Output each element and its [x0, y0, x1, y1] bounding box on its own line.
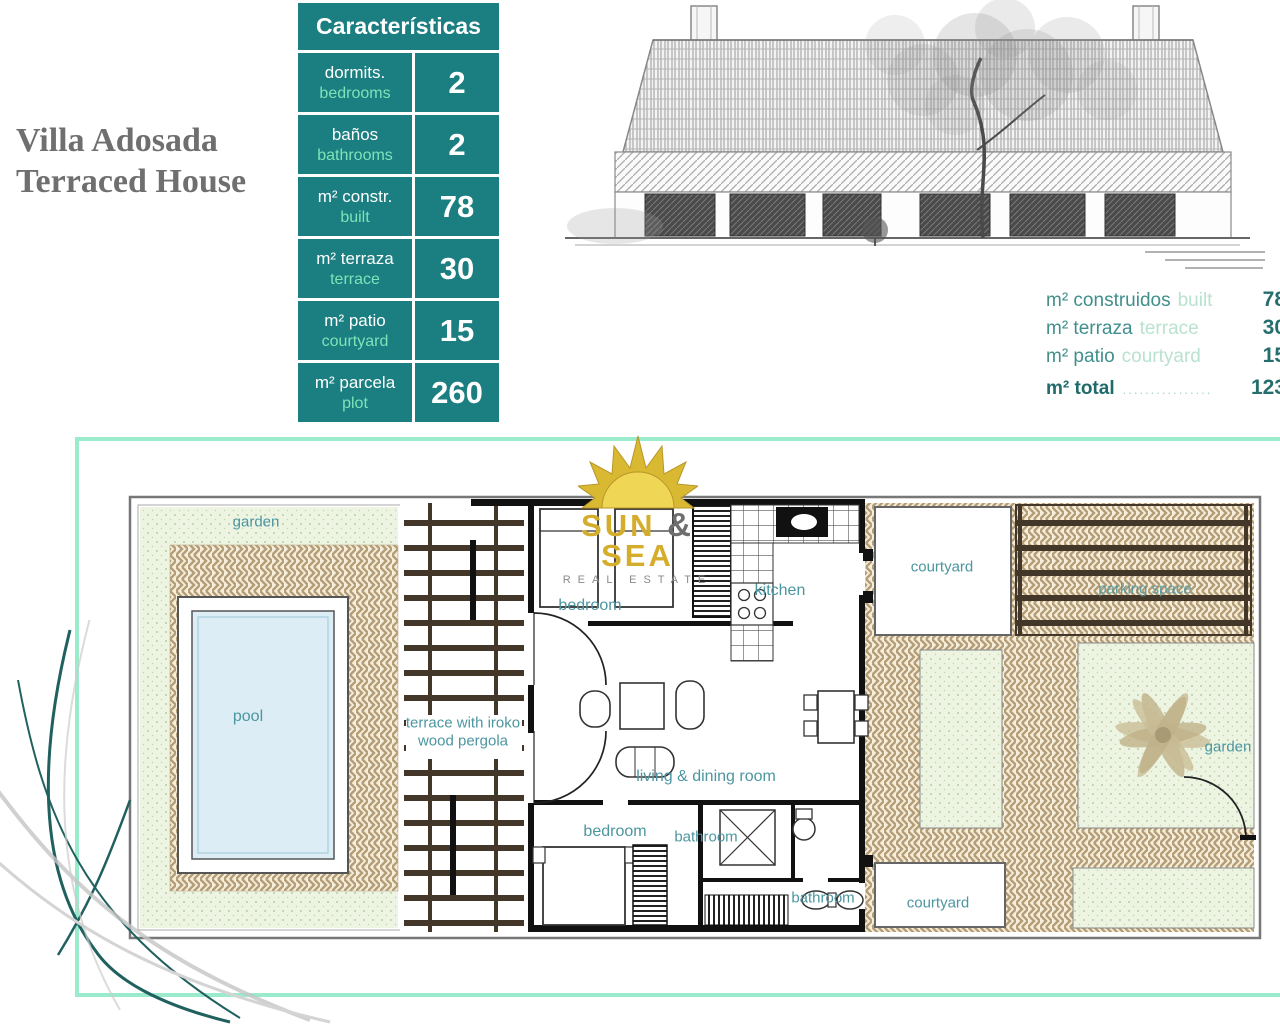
row-value: 2 — [415, 53, 499, 112]
page-title: Villa Adosada Terraced House — [16, 120, 296, 202]
room-label-bathroom-bottom: bathroom — [791, 890, 854, 907]
room-label-garden-left: garden — [233, 514, 280, 531]
area-summary: m² construidos built 78 m² terraza terra… — [1046, 288, 1280, 404]
row-value: 78 — [415, 177, 499, 236]
summary-row: m² construidos built 78 — [1046, 288, 1280, 316]
summary-total-row: m² total ................ 123 — [1046, 376, 1280, 404]
label-es: dormits. — [325, 62, 385, 83]
row-value: 30 — [415, 239, 499, 298]
row-value: 260 — [415, 363, 499, 422]
characteristics-header: Características — [298, 3, 499, 50]
label-en: built — [340, 207, 369, 228]
logo-name: SUN & SEA — [545, 510, 730, 571]
table-row: m² patio courtyard 15 — [298, 301, 499, 360]
dotted-leader: ................ — [1123, 382, 1213, 397]
summary-row: m² patio courtyard 15 — [1046, 344, 1280, 372]
room-label-terrace-line1: terrace with iroko — [406, 715, 520, 732]
room-label-parking-space: parking space — [1098, 581, 1191, 598]
row-label: dormits. bedrooms — [298, 53, 412, 112]
room-label-bedroom-bottom: bedroom — [583, 823, 646, 841]
label-es: m² parcela — [315, 372, 395, 393]
room-label-garden-right: garden — [1205, 739, 1252, 756]
summary-es: m² terraza — [1046, 318, 1133, 340]
label-es: m² terraza — [316, 248, 393, 269]
room-label-living-dining: living & dining room — [636, 768, 776, 786]
agency-logo: SUN & SEA REAL ESTATE — [545, 434, 730, 586]
label-es: m² constr. — [318, 186, 393, 207]
label-en: bedrooms — [319, 83, 390, 104]
house-elevation-drawing — [545, 0, 1280, 285]
summary-total-value: 123 — [1251, 376, 1280, 400]
summary-value: 30 — [1263, 316, 1280, 340]
summary-value: 78 — [1263, 288, 1280, 312]
row-label: m² parcela plot — [298, 363, 412, 422]
table-row: m² terraza terrace 30 — [298, 239, 499, 298]
room-label-bedroom-top: bedroom — [558, 597, 621, 615]
row-label: baños bathrooms — [298, 115, 412, 174]
row-value: 2 — [415, 115, 499, 174]
elevation-sketch — [545, 0, 1280, 290]
row-label: m² constr. built — [298, 177, 412, 236]
summary-value: 15 — [1263, 344, 1280, 368]
row-label: m² terraza terrace — [298, 239, 412, 298]
sun-icon — [578, 434, 698, 510]
summary-total-label: m² total — [1046, 378, 1115, 400]
summary-en: courtyard — [1122, 346, 1201, 368]
table-row: m² parcela plot 260 — [298, 363, 499, 422]
table-row: baños bathrooms 2 — [298, 115, 499, 174]
row-value: 15 — [415, 301, 499, 360]
title-english: Terraced House — [16, 161, 296, 202]
summary-en: built — [1178, 290, 1213, 312]
label-es: baños — [332, 124, 378, 145]
table-row: dormits. bedrooms 2 — [298, 53, 499, 112]
room-label-courtyard-top: courtyard — [911, 559, 974, 576]
room-label-courtyard-bottom: courtyard — [907, 895, 970, 912]
label-en: bathrooms — [317, 145, 393, 166]
row-label: m² patio courtyard — [298, 301, 412, 360]
decorative-swoosh — [0, 620, 420, 1024]
summary-es: m² construidos — [1046, 290, 1171, 312]
table-row: m² constr. built 78 — [298, 177, 499, 236]
characteristics-table: Características dormits. bedrooms 2 baño… — [298, 3, 499, 425]
page: Villa Adosada Terraced House Característ… — [0, 0, 1280, 1024]
label-en: courtyard — [322, 331, 389, 352]
label-es: m² patio — [324, 310, 385, 331]
summary-es: m² patio — [1046, 346, 1115, 368]
summary-en: terrace — [1140, 318, 1199, 340]
label-en: terrace — [330, 269, 380, 290]
room-label-kitchen: kitchen — [755, 582, 806, 600]
summary-row: m² terraza terrace 30 — [1046, 316, 1280, 344]
logo-tagline: REAL ESTATE — [545, 574, 730, 586]
label-en: plot — [342, 393, 368, 414]
logo-word-sea: SEA — [601, 538, 674, 573]
room-label-terrace-line2: wood pergola — [418, 733, 508, 750]
title-spanish: Villa Adosada — [16, 120, 296, 161]
room-label-bathroom-middle: bathroom — [674, 829, 737, 846]
